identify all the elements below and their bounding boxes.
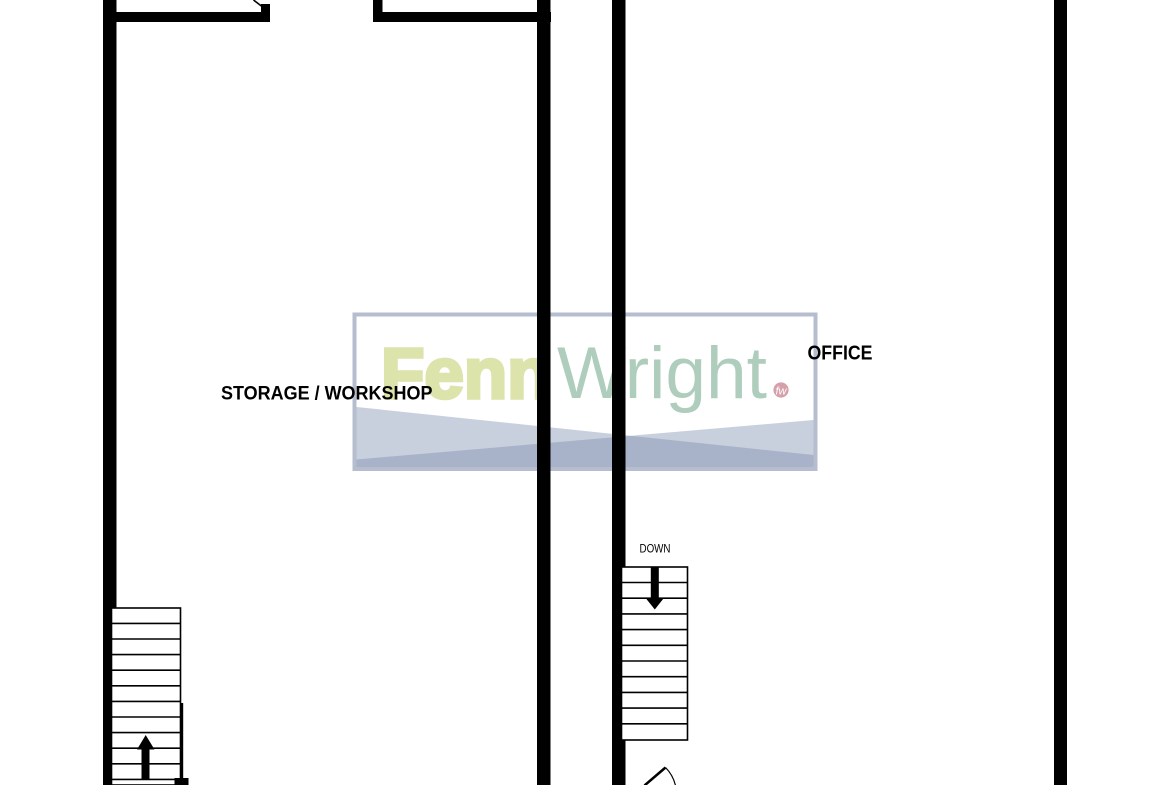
svg-text:Wright: Wright bbox=[557, 333, 767, 414]
svg-text:DOWN: DOWN bbox=[640, 541, 671, 555]
svg-text:fw: fw bbox=[776, 386, 788, 398]
svg-text:OFFICE: OFFICE bbox=[808, 342, 873, 364]
svg-text:STORAGE / WORKSHOP: STORAGE / WORKSHOP bbox=[221, 384, 433, 405]
